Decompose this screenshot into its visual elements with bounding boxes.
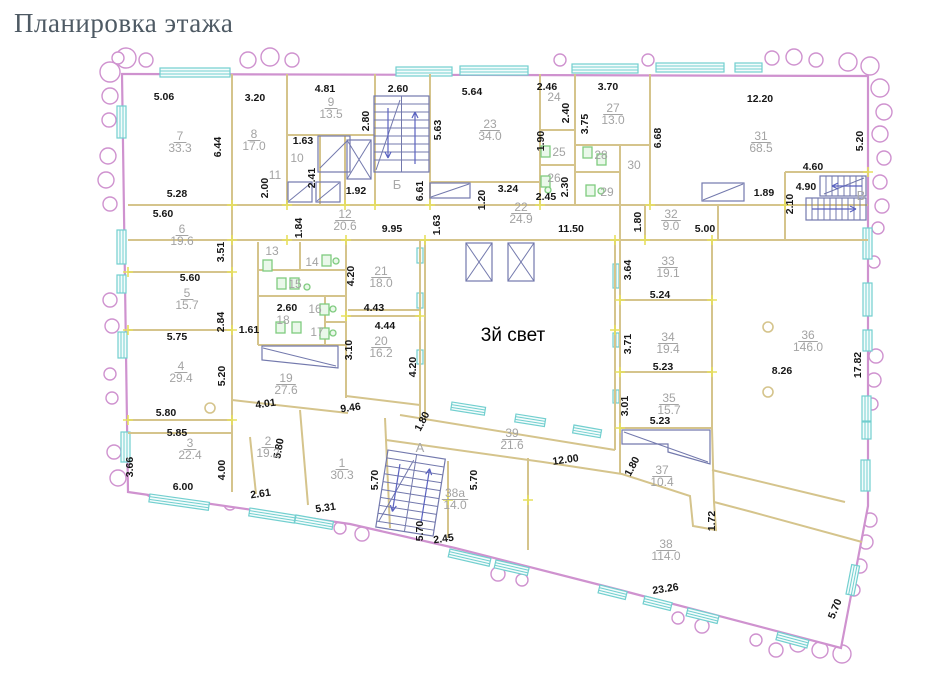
- dimension-label: 1.20: [476, 190, 488, 211]
- svg-text:13: 13: [265, 244, 279, 258]
- svg-text:26: 26: [547, 171, 561, 185]
- stair-label: В: [857, 188, 866, 203]
- dimension-label: 1.80: [632, 212, 644, 233]
- svg-text:18: 18: [276, 313, 290, 327]
- dimension-label: 5.70: [468, 470, 480, 491]
- dimension-label: 3.66: [124, 457, 136, 478]
- dimension-label: 2.10: [784, 194, 796, 215]
- svg-text:10: 10: [290, 151, 304, 165]
- svg-text:17.0: 17.0: [242, 139, 266, 153]
- room-label: 28: [594, 148, 608, 162]
- dimension-label: 5.23: [653, 361, 674, 373]
- room-label: 11: [269, 168, 282, 182]
- dimension-label: 2.40: [560, 103, 572, 124]
- dimension-label: 4.44: [375, 320, 396, 332]
- room-label: 24: [547, 90, 561, 104]
- dimension-label: 1.61: [239, 324, 260, 336]
- dimension-label: 5.06: [154, 91, 175, 103]
- dimension-label: 5.80: [156, 407, 177, 419]
- svg-text:10.4: 10.4: [650, 475, 674, 489]
- dimension-label: 6.44: [212, 137, 224, 158]
- svg-text:15.7: 15.7: [175, 298, 199, 312]
- room-label: 10: [290, 151, 304, 165]
- svg-text:11: 11: [269, 168, 282, 182]
- room-label: 14: [305, 255, 319, 269]
- atrium-label: 3й свет: [481, 325, 546, 346]
- svg-text:33.3: 33.3: [168, 141, 192, 155]
- svg-text:19.6: 19.6: [170, 234, 194, 248]
- dimension-label: 6.00: [173, 481, 194, 493]
- svg-text:19.2: 19.2: [256, 446, 280, 460]
- stair-label: А: [416, 440, 425, 455]
- room-label: 25: [552, 145, 566, 159]
- dimension-label: 2.30: [559, 177, 571, 198]
- svg-text:24: 24: [547, 90, 561, 104]
- svg-text:114.0: 114.0: [651, 549, 680, 563]
- dimension-label: 3.75: [579, 114, 591, 135]
- svg-text:16: 16: [308, 302, 322, 316]
- dimension-label: 4.60: [803, 161, 824, 173]
- dimension-label: 11.50: [558, 223, 584, 235]
- svg-text:25: 25: [552, 145, 566, 159]
- dimension-label: 5.70: [414, 521, 426, 542]
- dimension-label: 1.63: [431, 215, 443, 236]
- stair-label: Б: [393, 177, 402, 192]
- room-label: 13: [265, 244, 279, 258]
- dimension-label: 5.85: [167, 427, 188, 439]
- dimension-label: 3.70: [598, 81, 619, 93]
- dimension-label: 5.63: [432, 120, 444, 141]
- dimension-label: 3.71: [622, 334, 634, 355]
- svg-text:18.0: 18.0: [369, 276, 393, 290]
- svg-text:20.6: 20.6: [333, 219, 357, 233]
- dimension-label: 5.28: [167, 188, 188, 200]
- svg-text:21.6: 21.6: [500, 438, 524, 452]
- dimension-label: 4.43: [364, 302, 385, 314]
- dimension-label: 1.90: [535, 131, 547, 152]
- dimension-label: 5.20: [854, 131, 866, 152]
- dimension-label: 8.26: [772, 365, 793, 377]
- room-label: 18: [276, 313, 290, 327]
- dimension-label: 2.45: [536, 191, 557, 203]
- room-label: 16: [308, 302, 322, 316]
- svg-text:17: 17: [310, 325, 324, 339]
- svg-text:68.5: 68.5: [749, 141, 773, 155]
- dimension-label: 1.63: [293, 135, 314, 147]
- dimension-label: 2.84: [215, 312, 227, 333]
- floor-plan-drawing: 5.063.204.812.605.642.463.7012.206.442.8…: [0, 0, 942, 690]
- dimension-label: 5.75: [167, 331, 188, 343]
- svg-text:22.4: 22.4: [178, 448, 202, 462]
- svg-text:29: 29: [600, 185, 614, 199]
- dimension-label: 5.70: [369, 470, 381, 491]
- dimension-label: 5.00: [695, 223, 716, 235]
- dimension-label: 3.64: [622, 260, 634, 281]
- dimension-label: 5.24: [650, 289, 671, 301]
- dimension-label: 1.72: [706, 511, 718, 532]
- dimension-label: 1.89: [754, 187, 775, 199]
- svg-text:14.0: 14.0: [443, 498, 467, 512]
- dimension-label: 6.68: [652, 128, 664, 149]
- dimension-label: 4.90: [796, 181, 817, 193]
- dimension-label: 4.81: [315, 83, 336, 95]
- dimension-label: 6.61: [414, 181, 426, 202]
- svg-text:28: 28: [594, 148, 608, 162]
- room-label: 30: [627, 158, 641, 172]
- svg-text:14: 14: [305, 255, 319, 269]
- dimension-label: 5.64: [462, 86, 483, 98]
- svg-text:13.0: 13.0: [601, 113, 625, 127]
- svg-text:27.6: 27.6: [274, 383, 298, 397]
- svg-text:19.1: 19.1: [656, 266, 680, 280]
- svg-text:16.2: 16.2: [369, 346, 393, 360]
- svg-text:34.0: 34.0: [478, 129, 502, 143]
- room-label: 15: [288, 277, 302, 291]
- svg-text:30.3: 30.3: [330, 468, 354, 482]
- dimension-label: 5.20: [216, 366, 228, 387]
- dimension-label: 4.00: [216, 460, 228, 481]
- room-label: 29: [600, 185, 614, 199]
- dimension-label: 9.95: [382, 223, 403, 235]
- dimension-label: 2.41: [306, 168, 318, 189]
- dimension-label: 17.82: [852, 352, 864, 378]
- svg-text:29.4: 29.4: [169, 371, 193, 385]
- svg-text:15: 15: [288, 277, 302, 291]
- svg-text:24.9: 24.9: [509, 212, 533, 226]
- floor-plan-page: Планировка этажа: [0, 0, 942, 690]
- room-label: 26: [547, 171, 561, 185]
- dimension-label: 2.60: [388, 83, 409, 95]
- svg-text:19.4: 19.4: [656, 342, 680, 356]
- dimension-label: 12.20: [747, 93, 773, 105]
- dimension-label: 5.60: [180, 272, 201, 284]
- dimension-label: 3.51: [215, 242, 227, 263]
- dimension-label: 3.10: [343, 340, 355, 361]
- dimension-label: 3.20: [245, 92, 266, 104]
- dimension-label: 4.20: [407, 357, 419, 378]
- dimension-label: 3.01: [619, 396, 631, 417]
- svg-text:146.0: 146.0: [793, 340, 823, 354]
- room-label: 38а14.0: [442, 486, 468, 512]
- svg-text:13.5: 13.5: [319, 107, 343, 121]
- svg-text:30: 30: [627, 158, 641, 172]
- room-label: 17: [310, 325, 324, 339]
- dimension-label: 4.20: [345, 266, 357, 287]
- svg-text:9.0: 9.0: [663, 219, 680, 233]
- svg-text:15.7: 15.7: [657, 403, 681, 417]
- dimension-label: 1.92: [346, 185, 367, 197]
- dimension-label: 2.80: [360, 111, 372, 132]
- dimension-label: 3.24: [498, 183, 519, 195]
- dimension-label: 5.60: [153, 208, 174, 220]
- dimension-label: 1.84: [293, 218, 305, 239]
